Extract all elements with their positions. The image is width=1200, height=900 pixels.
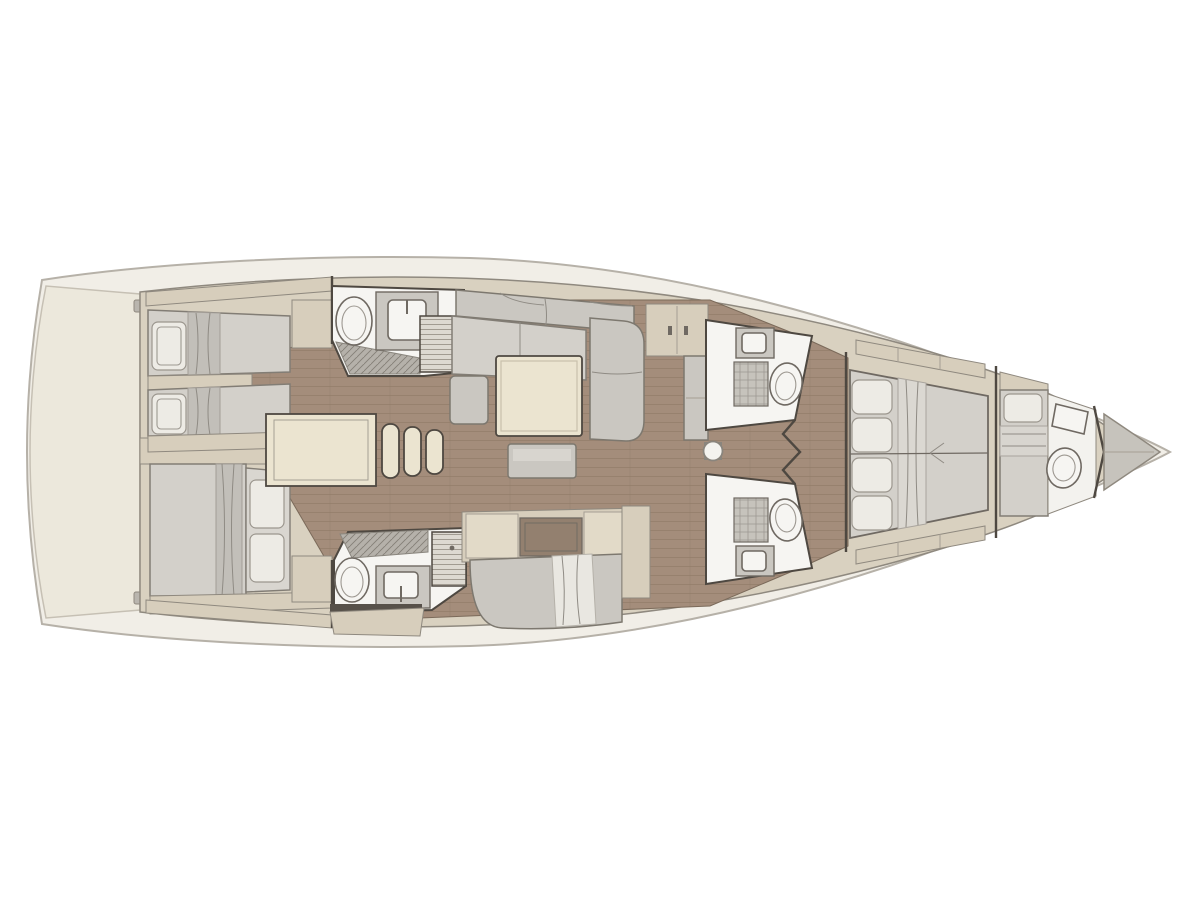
settee-throw bbox=[552, 554, 596, 627]
sink-vanity bbox=[736, 546, 774, 576]
sink-basin bbox=[742, 551, 766, 571]
pillow bbox=[1004, 394, 1042, 422]
shower-grate bbox=[734, 362, 768, 406]
aft-head-port bbox=[332, 286, 464, 376]
toilet-bowl bbox=[335, 558, 369, 602]
single-bed-1 bbox=[148, 310, 290, 376]
louver-locker bbox=[420, 316, 456, 372]
toilet-bowl bbox=[336, 297, 372, 345]
forward-head-starboard bbox=[706, 474, 812, 584]
dining-table bbox=[496, 356, 582, 436]
anchor-locker bbox=[1104, 414, 1160, 490]
forward-head-port bbox=[706, 320, 812, 430]
stair-box bbox=[266, 414, 376, 486]
mast-post-icon bbox=[704, 442, 723, 461]
owner-double-bed bbox=[850, 370, 988, 538]
blanket bbox=[188, 312, 220, 375]
pillow-1 bbox=[250, 480, 284, 528]
pillow-4 bbox=[852, 496, 892, 530]
entry-step-platform bbox=[330, 608, 424, 636]
toilet bbox=[335, 558, 369, 602]
pillow-2 bbox=[852, 418, 892, 452]
blanket-drape bbox=[216, 464, 242, 596]
galley-column bbox=[622, 506, 650, 598]
pillow-2 bbox=[250, 534, 284, 582]
wardrobe bbox=[292, 556, 332, 602]
cabinet-handle-right bbox=[684, 326, 688, 335]
galley bbox=[462, 506, 650, 629]
bow-shelf bbox=[1000, 372, 1048, 392]
pillow-3 bbox=[852, 458, 892, 492]
salon-side-seat bbox=[450, 376, 488, 424]
sink-vanity bbox=[736, 328, 774, 358]
sofa-chaise bbox=[590, 318, 644, 441]
step-1 bbox=[382, 424, 399, 478]
locker-knob bbox=[450, 546, 455, 551]
sink-vanity bbox=[376, 566, 430, 608]
counter-block-left bbox=[466, 514, 518, 558]
yacht-floor-plan bbox=[0, 0, 1200, 900]
louver-locker bbox=[432, 532, 466, 586]
stove-sink-top bbox=[520, 518, 582, 556]
floor-plan-canvas bbox=[0, 0, 1200, 900]
shower-grate bbox=[734, 498, 768, 542]
mast-post bbox=[704, 442, 723, 461]
blanket bbox=[188, 387, 220, 436]
settee-seat bbox=[470, 554, 622, 629]
step-2 bbox=[404, 427, 421, 476]
cabinet-handle-left bbox=[668, 326, 672, 335]
bow-berth bbox=[1000, 390, 1048, 516]
bow-cabin bbox=[1000, 372, 1104, 516]
toilet bbox=[336, 297, 372, 345]
step-3 bbox=[426, 430, 443, 474]
sink-basin bbox=[742, 333, 766, 353]
pillow-1 bbox=[852, 380, 892, 414]
coffee-bench-top bbox=[513, 449, 571, 461]
blanket bbox=[1000, 426, 1048, 456]
wardrobe bbox=[292, 300, 332, 348]
swim-platform bbox=[30, 286, 140, 618]
